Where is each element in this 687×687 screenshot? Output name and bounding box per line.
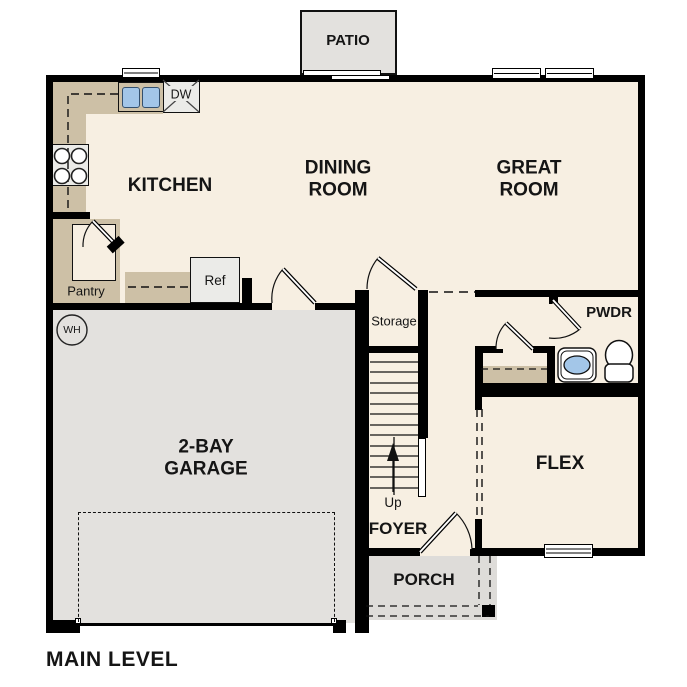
wh-label: WH xyxy=(63,324,81,336)
plan-title: MAIN LEVEL xyxy=(46,648,178,673)
up-label: Up xyxy=(384,495,401,511)
pantry-label: Pantry xyxy=(67,283,105,298)
garage-label: 2-BAY GARAGE xyxy=(164,437,247,482)
stairs xyxy=(370,362,418,495)
cooktop-burners-icon xyxy=(55,149,87,184)
kitchen-label: KITCHEN xyxy=(128,175,212,197)
ref-label: Ref xyxy=(204,273,225,289)
door-swing-storage xyxy=(367,258,416,289)
door-swing-garage-entry xyxy=(272,269,315,303)
pwdr-label: PWDR xyxy=(586,304,632,322)
plan-symbol-overlay xyxy=(0,0,687,687)
dining-room-label: DINING ROOM xyxy=(305,158,372,203)
door-swing-powder xyxy=(549,300,580,338)
storage-label: Storage xyxy=(371,313,417,328)
door-swing-pantry xyxy=(83,221,125,253)
door-swing-closet xyxy=(496,323,533,349)
toilet-icon xyxy=(605,341,633,383)
patio-label: PATIO xyxy=(326,32,370,50)
flex-label: FLEX xyxy=(536,453,585,475)
door-swing-front xyxy=(420,513,472,552)
porch-label: PORCH xyxy=(393,570,454,590)
flex-cased-opening-dashed xyxy=(477,409,482,519)
floor-plan: PATIO KITCHEN DINING ROOM GREAT ROOM 2-B… xyxy=(0,0,687,687)
foyer-label: FOYER xyxy=(369,519,428,539)
bathroom-sink-icon xyxy=(558,348,596,382)
great-room-label: GREAT ROOM xyxy=(496,158,561,203)
dw-label: DW xyxy=(171,88,192,103)
